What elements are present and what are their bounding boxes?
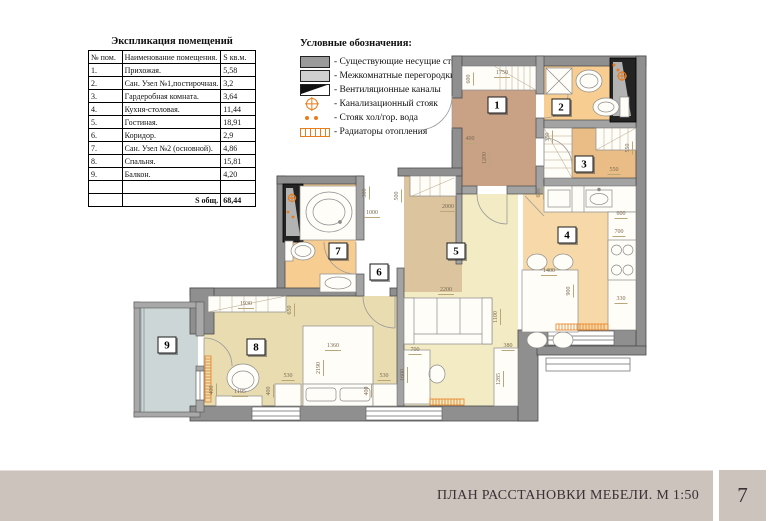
dimension-label: 1930 <box>238 301 254 309</box>
dimension-label: 600 <box>536 187 544 200</box>
room-number-9: 9 <box>158 337 177 354</box>
dimension-label: 500 <box>394 190 402 203</box>
room-number-4: 4 <box>558 227 577 244</box>
dimension-label: 400 <box>364 385 372 398</box>
room-number-6: 6 <box>370 264 389 281</box>
sheet-title: ПЛАН РАССТАНОВКИ МЕБЕЛИ. М 1:50 <box>437 488 699 504</box>
dimension-label: 530 <box>282 373 295 381</box>
room-number-5: 5 <box>447 243 466 260</box>
dimension-label: 400 <box>266 385 274 398</box>
dimension-label: 330 <box>615 296 628 304</box>
room-number-3: 3 <box>575 156 594 173</box>
page-number-box: 7 <box>719 470 766 521</box>
dimension-label: 900 <box>566 285 574 298</box>
dimension-label: 1750 <box>494 70 510 78</box>
dimension-label: 2190 <box>316 360 324 376</box>
dimension-label: 2000 <box>440 204 456 212</box>
dimension-label: 1285 <box>496 371 504 387</box>
dimension-label: 1400 <box>541 268 557 276</box>
dimension-label: 2200 <box>438 287 454 295</box>
dimension-label: 1200 <box>482 150 490 166</box>
dimension-label: 1100 <box>493 309 501 325</box>
dimension-label: 650 <box>287 304 295 317</box>
plan-sheet: Экспликация помещений № пом.Наименование… <box>0 0 770 521</box>
floor-plan-drawing <box>0 0 770 521</box>
dimension-label: 1360 <box>325 343 341 351</box>
dimension-label: 700 <box>613 229 626 237</box>
dimension-label: 400 <box>464 136 477 144</box>
dimension-label: 550 <box>608 167 621 175</box>
dimension-label: 380 <box>502 343 515 351</box>
dimension-label: 1000 <box>364 210 380 218</box>
dimension-label: 300 <box>362 187 370 200</box>
room-number-7: 7 <box>329 243 348 260</box>
title-bar: ПЛАН РАССТАНОВКИ МЕБЕЛИ. М 1:50 <box>0 470 713 521</box>
dimension-label: 600 <box>615 211 628 219</box>
room-number-8: 8 <box>247 339 266 356</box>
dimension-label: 1600 <box>400 367 408 383</box>
dimension-label: 700 <box>409 347 422 355</box>
dimension-label: 530 <box>378 373 391 381</box>
dimension-label: 400 <box>209 384 217 397</box>
dimension-label: 600 <box>466 73 474 86</box>
dimension-label: 550 <box>625 142 633 155</box>
page-number: 7 <box>737 483 748 508</box>
room-number-1: 1 <box>488 97 507 114</box>
dimension-label: 1195 <box>232 389 248 397</box>
dimension-label: 350 <box>545 131 553 144</box>
room-number-2: 2 <box>552 99 571 116</box>
